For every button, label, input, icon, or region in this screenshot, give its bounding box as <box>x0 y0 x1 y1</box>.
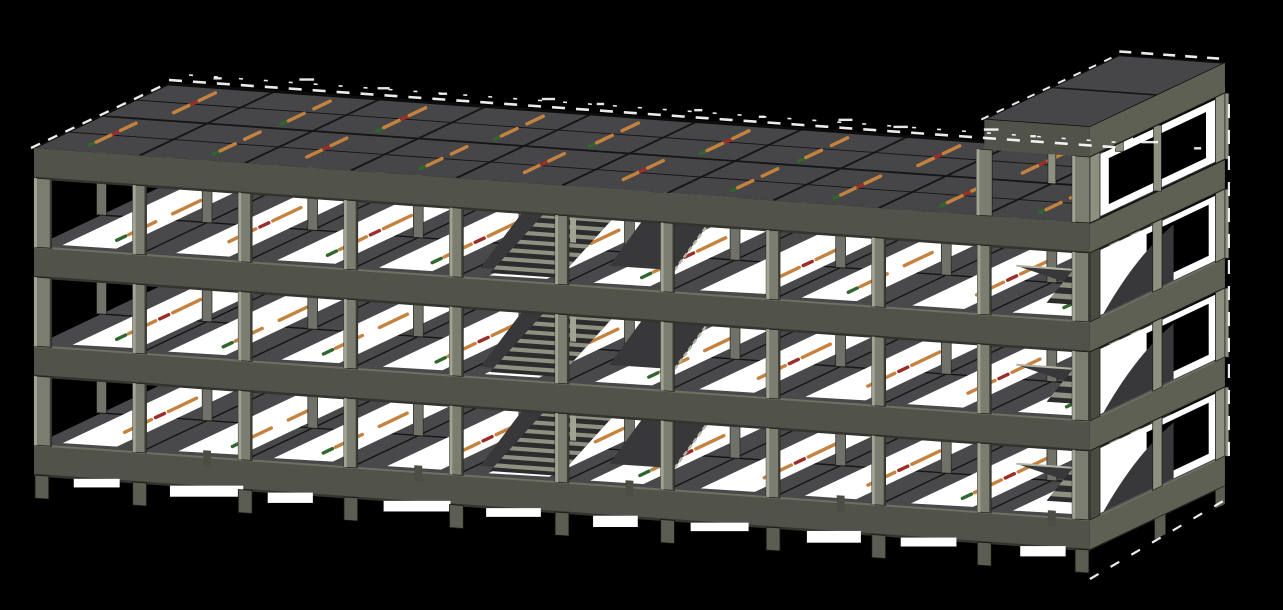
cad-viewport[interactable] <box>0 0 1283 610</box>
foundation-stub <box>661 520 675 544</box>
ground-showthrough <box>268 493 313 503</box>
ground-showthrough <box>901 538 957 547</box>
ground-showthrough <box>170 486 243 497</box>
ground-showthrough <box>1020 546 1065 556</box>
foundation-stub <box>1075 549 1089 573</box>
foundation-stub <box>766 527 780 551</box>
ground-showthrough <box>807 531 861 543</box>
foundation-stub <box>450 505 464 529</box>
foundation-stub <box>555 512 569 536</box>
foundation-stub <box>344 497 358 521</box>
ground-showthrough <box>486 508 541 517</box>
ground-showthrough <box>74 479 120 488</box>
foundation-stub <box>133 482 147 506</box>
foundation-stub <box>238 490 252 514</box>
foundation-stub <box>977 542 991 566</box>
ground-showthrough <box>384 501 451 512</box>
right-end-face[interactable] <box>1090 159 1225 550</box>
foundation-stub <box>35 475 49 499</box>
structural-model-3d-view <box>0 0 1283 610</box>
ground-showthrough <box>691 523 749 531</box>
foundation-stub <box>872 535 886 559</box>
ground-showthrough <box>593 516 638 527</box>
